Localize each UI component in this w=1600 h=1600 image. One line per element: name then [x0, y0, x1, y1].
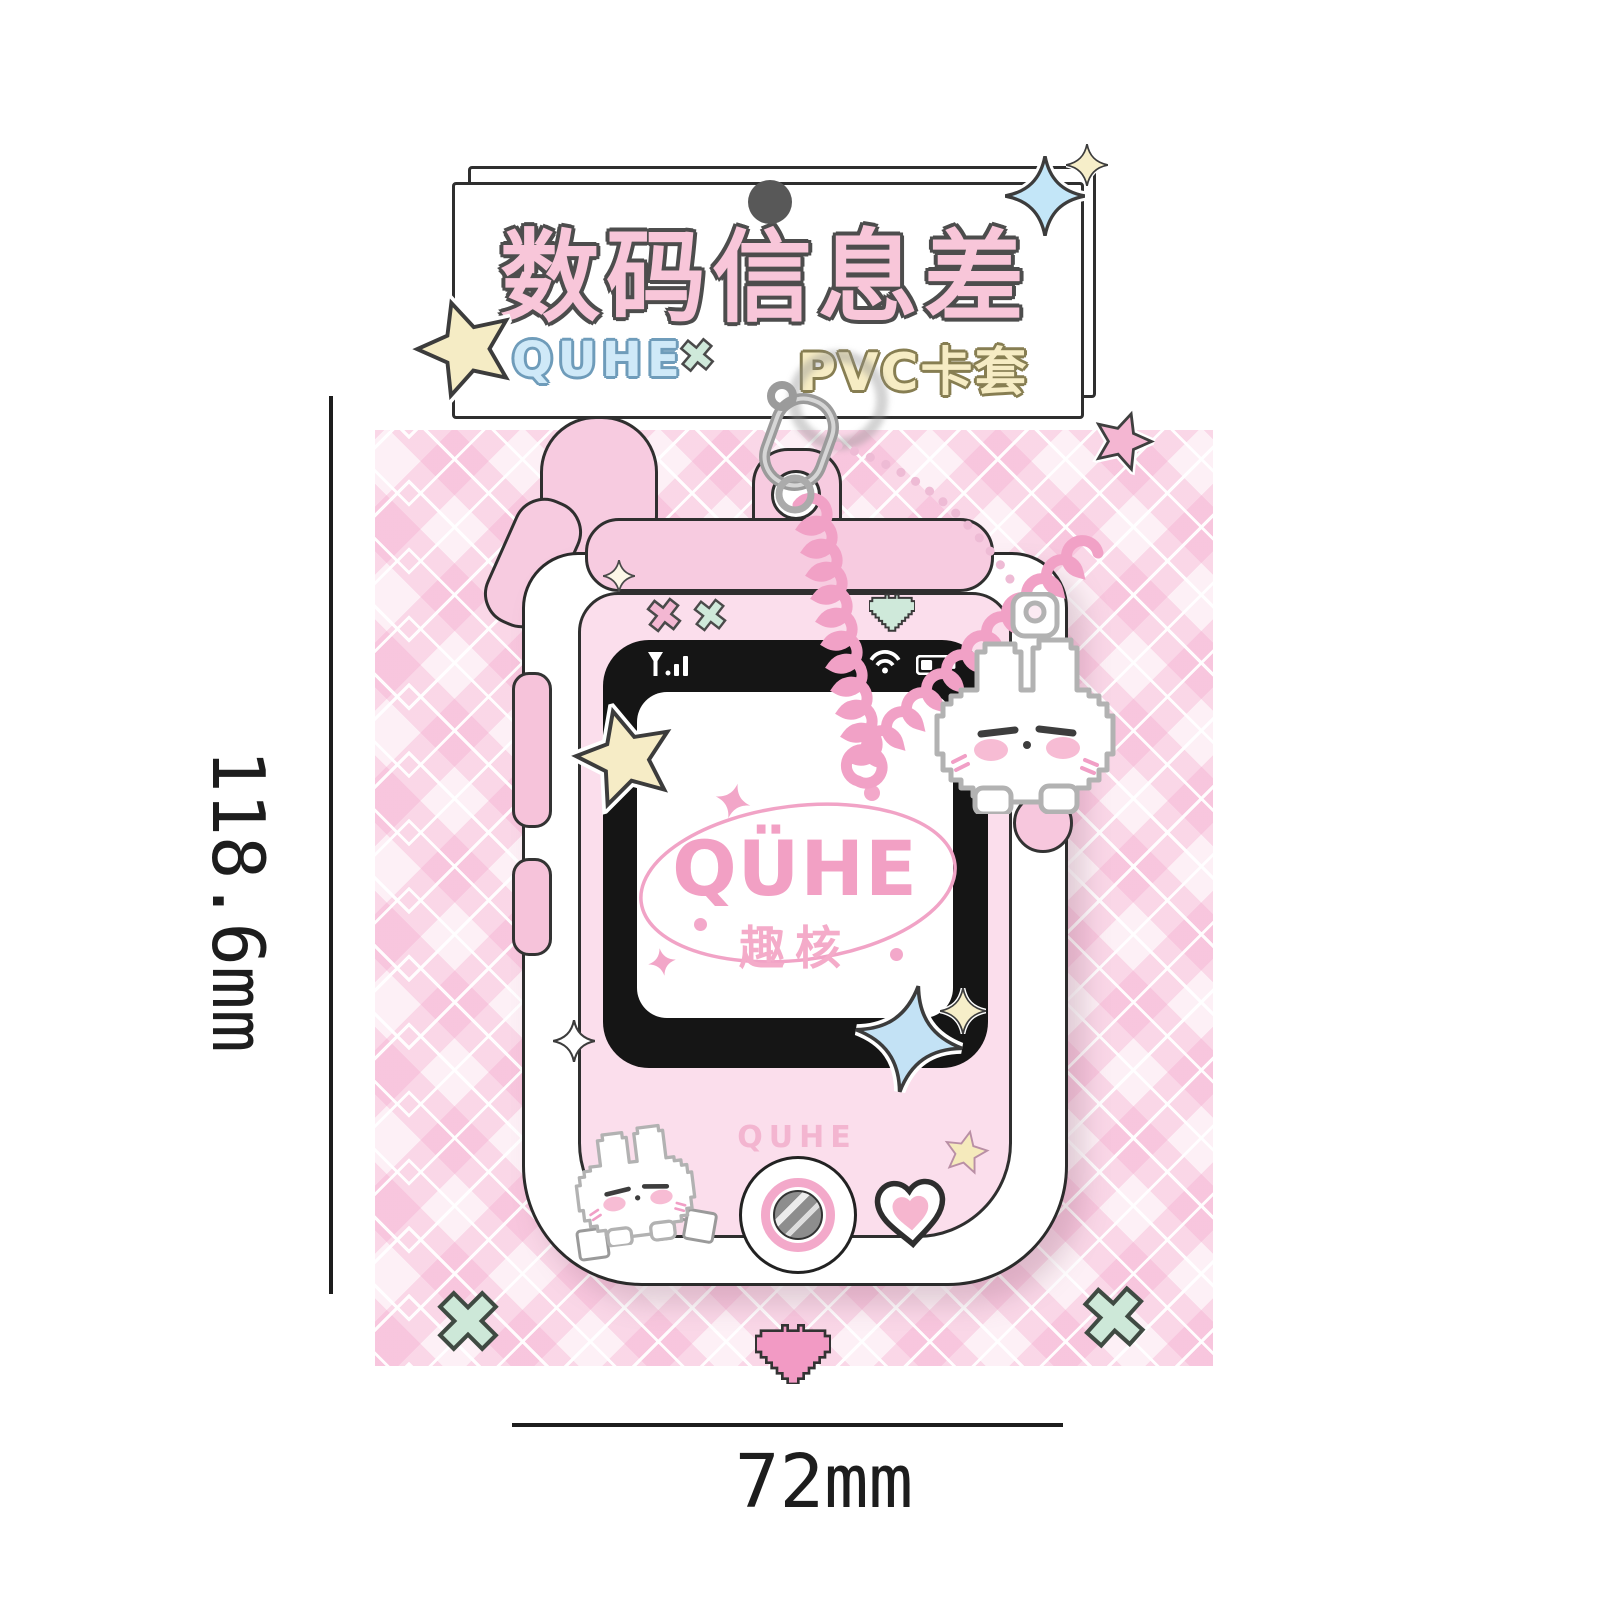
strap-overlay: [0, 0, 1600, 1600]
product-spec-image: 118.6mm 72mm: [0, 0, 1600, 1600]
bead-strand: [838, 446, 1018, 592]
charm-hole-tab: [1013, 594, 1057, 636]
bunny-charm: [925, 592, 1125, 814]
